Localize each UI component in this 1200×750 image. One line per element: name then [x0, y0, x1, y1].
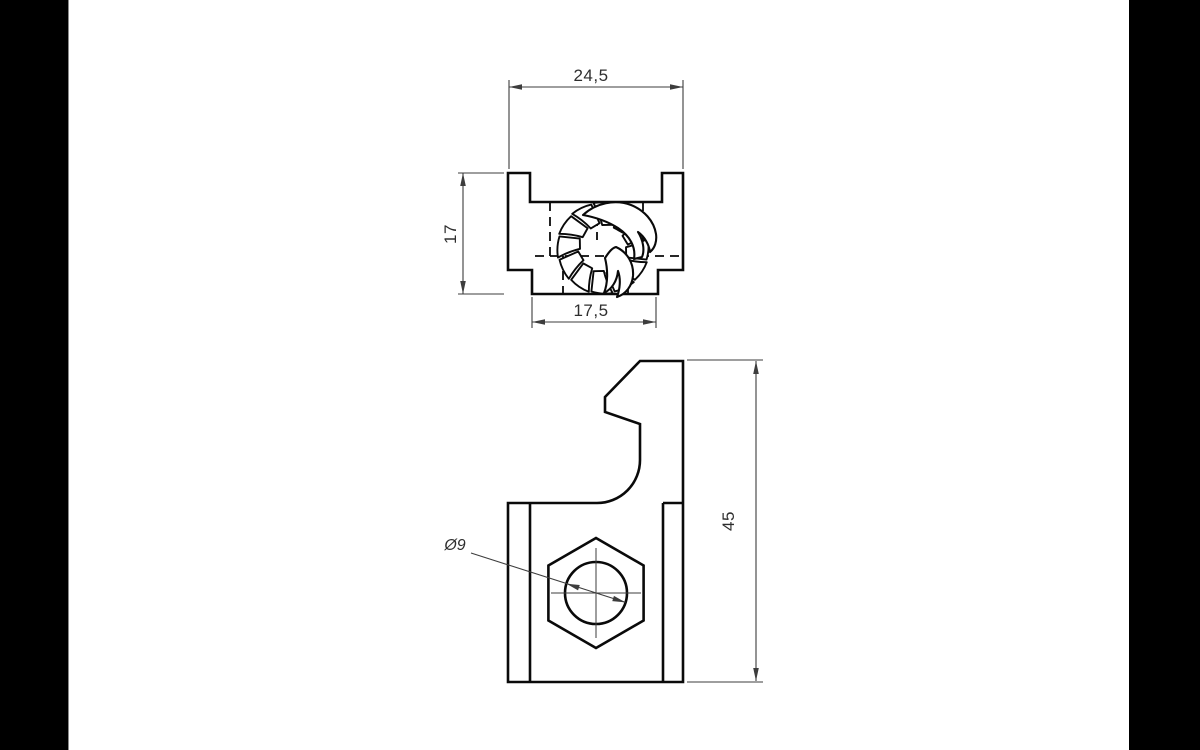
dim-label-overall-width: 24,5: [573, 66, 608, 85]
paper: [68, 0, 1129, 750]
dim-label-overall-height: 45: [719, 511, 738, 531]
dim-label-front-height: 17: [441, 224, 460, 244]
technical-drawing-canvas: 24,5 17 17,5 Ø9: [0, 0, 1200, 750]
screenshot-stage: 24,5 17 17,5 Ø9: [0, 0, 1200, 750]
dim-label-hole-diameter: Ø9: [443, 537, 465, 554]
dim-label-slot-width: 17,5: [573, 301, 608, 320]
letterbox: [0, 0, 1200, 750]
